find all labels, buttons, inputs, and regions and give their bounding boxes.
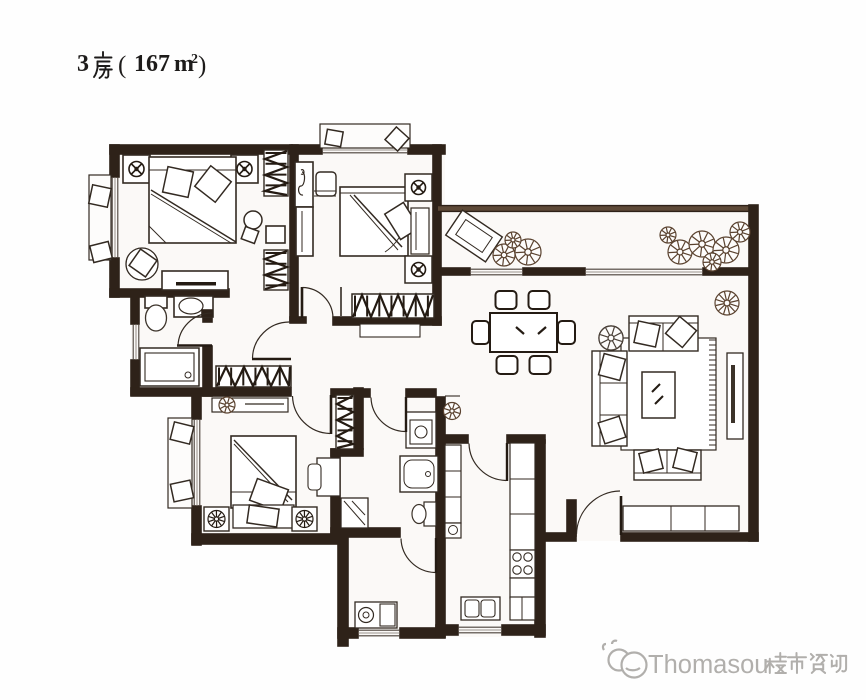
svg-text:Thomasou: Thomasou: [648, 651, 768, 679]
svg-text:3: 3: [77, 51, 89, 77]
svg-text:): ): [198, 52, 206, 79]
svg-text:2: 2: [191, 52, 198, 67]
svg-text:(: (: [118, 52, 126, 79]
svg-text:167: 167: [134, 51, 170, 77]
